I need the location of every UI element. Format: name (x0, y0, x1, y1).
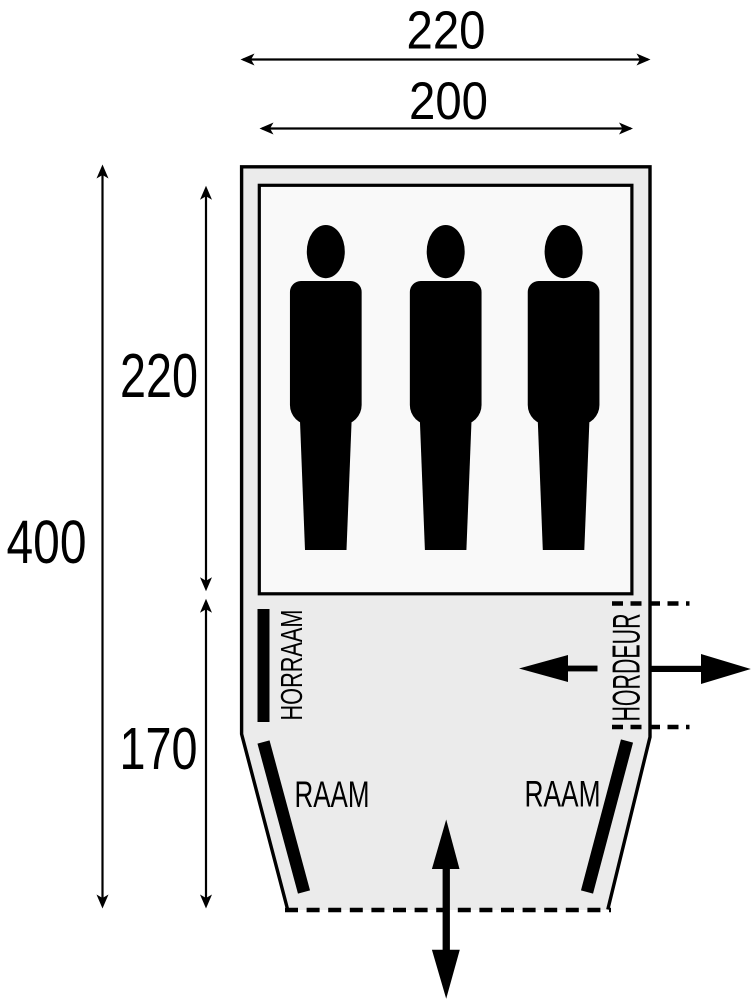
svg-text:RAAM: RAAM (295, 774, 370, 815)
svg-text:HORDEUR: HORDEUR (606, 614, 649, 722)
svg-text:220: 220 (120, 342, 198, 411)
svg-text:200: 200 (409, 72, 488, 131)
svg-text:RAAM: RAAM (525, 774, 601, 815)
svg-text:170: 170 (120, 716, 198, 782)
svg-text:HORRAAM: HORRAAM (275, 610, 309, 721)
svg-text:400: 400 (7, 508, 87, 576)
svg-text:220: 220 (407, 2, 486, 61)
